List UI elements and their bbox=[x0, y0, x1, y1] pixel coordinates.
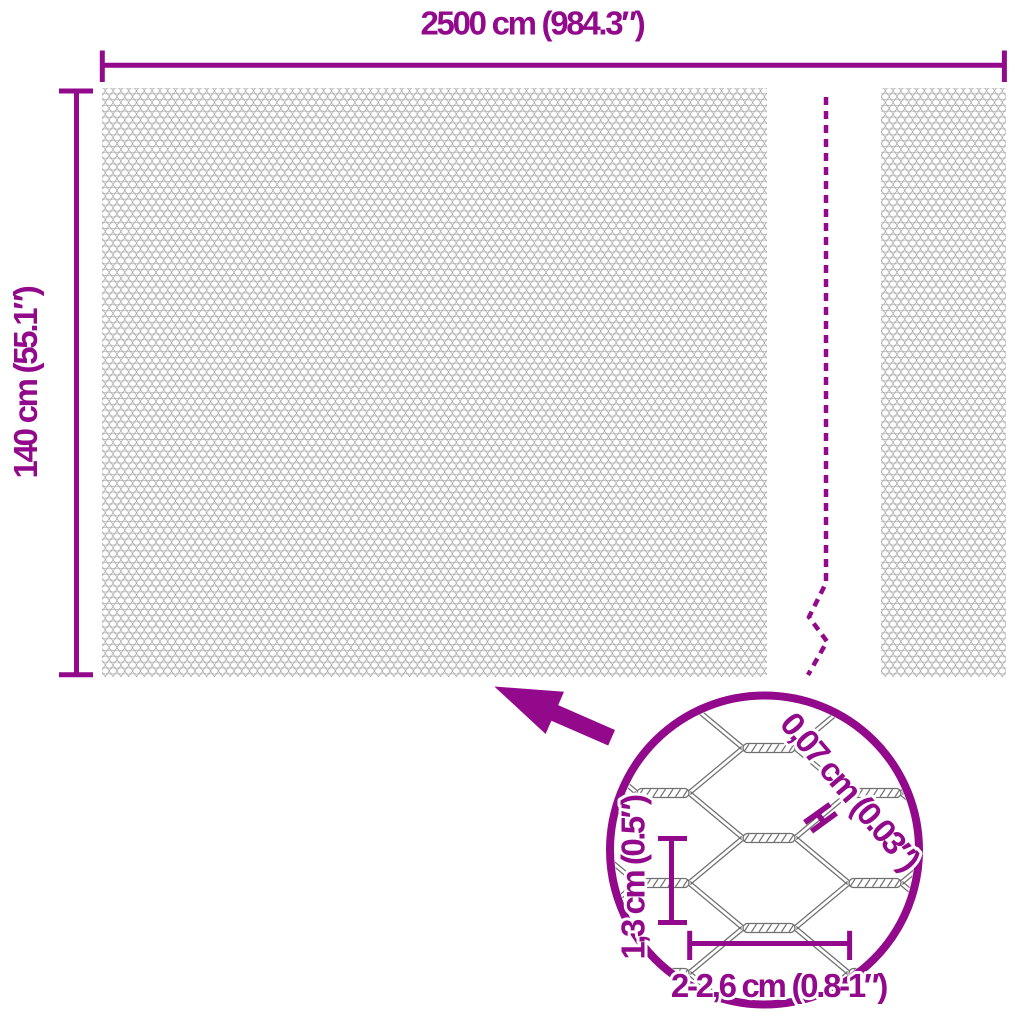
svg-text:1,3 cm (0.5″): 1,3 cm (0.5″) bbox=[615, 795, 652, 960]
svg-text:2-2,6 cm (0.8-1″): 2-2,6 cm (0.8-1″) bbox=[671, 967, 887, 1004]
svg-text:140 cm (55.1″): 140 cm (55.1″) bbox=[7, 286, 44, 478]
svg-text:2500 cm (984.3″): 2500 cm (984.3″) bbox=[420, 5, 644, 42]
